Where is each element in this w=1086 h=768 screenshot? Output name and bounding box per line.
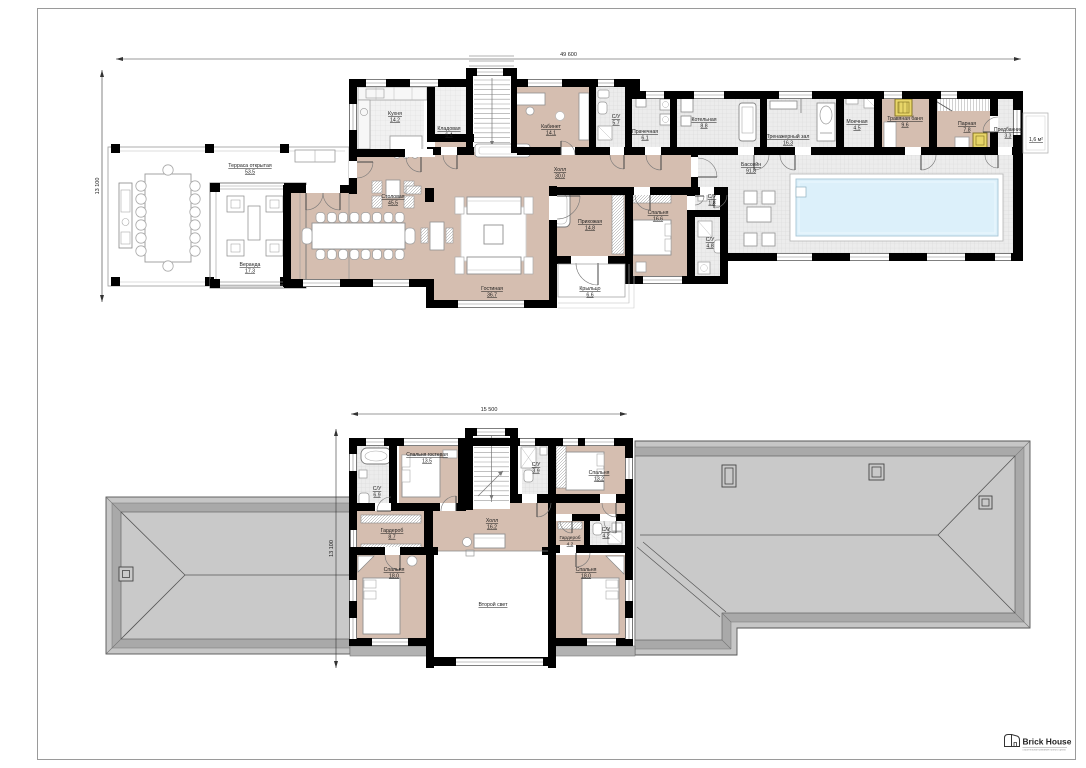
svg-text:Гардероб: Гардероб xyxy=(559,535,580,541)
svg-text:6.4: 6.4 xyxy=(445,132,452,138)
svg-text:9.6: 9.6 xyxy=(901,122,908,128)
svg-text:8.8: 8.8 xyxy=(700,123,707,129)
svg-text:С/У: С/У xyxy=(612,114,621,120)
svg-text:18.0: 18.0 xyxy=(581,573,591,579)
svg-text:Тренажерный зал: Тренажерный зал xyxy=(767,133,810,140)
svg-text:Спальня: Спальня xyxy=(384,567,405,573)
svg-text:Парная: Парная xyxy=(958,121,976,127)
svg-text:36.7: 36.7 xyxy=(487,292,497,298)
svg-text:4.2: 4.2 xyxy=(602,533,609,539)
svg-text:16.6: 16.6 xyxy=(653,216,663,222)
svg-text:17.3: 17.3 xyxy=(245,268,255,274)
svg-text:45.5: 45.5 xyxy=(388,200,398,206)
svg-text:4.5: 4.5 xyxy=(853,125,860,131)
svg-text:С/У: С/У xyxy=(532,462,541,468)
svg-text:Травяная баня: Травяная баня xyxy=(887,116,923,122)
svg-text:Спальня: Спальня xyxy=(576,567,597,573)
svg-text:8.7: 8.7 xyxy=(388,534,395,540)
svg-text:Предбанник: Предбанник xyxy=(994,127,1023,133)
svg-text:7.8: 7.8 xyxy=(963,127,970,133)
svg-text:Спальня: Спальня xyxy=(648,210,669,216)
svg-text:1,6 м²: 1,6 м² xyxy=(1029,137,1043,143)
svg-text:Терраса открытая: Терраса открытая xyxy=(228,163,272,169)
svg-text:С/У: С/У xyxy=(706,237,715,243)
svg-text:Кабинет: Кабинет xyxy=(541,124,561,130)
svg-text:Столовая: Столовая xyxy=(381,194,404,200)
svg-text:6.6: 6.6 xyxy=(586,292,593,298)
svg-text:Второй свет: Второй свет xyxy=(479,601,509,608)
svg-text:Крыльцо: Крыльцо xyxy=(579,286,600,292)
svg-text:Спальня: Спальня xyxy=(589,470,610,476)
svg-text:16.2: 16.2 xyxy=(487,524,497,530)
svg-text:14.8: 14.8 xyxy=(585,225,595,231)
svg-text:Кухня: Кухня xyxy=(388,111,402,117)
svg-text:6.9: 6.9 xyxy=(373,492,380,498)
svg-text:Прачечная: Прачечная xyxy=(632,129,658,135)
svg-text:30.0: 30.0 xyxy=(555,173,565,179)
svg-text:3.3: 3.3 xyxy=(1005,133,1012,139)
svg-text:13.2: 13.2 xyxy=(594,476,604,482)
svg-text:4.2: 4.2 xyxy=(567,541,574,547)
svg-text:Холл: Холл xyxy=(554,167,566,173)
svg-text:5.7: 5.7 xyxy=(612,120,619,126)
svg-text:14.2: 14.2 xyxy=(390,117,400,123)
svg-text:Гостиная: Гостиная xyxy=(481,286,503,292)
svg-text:С/У: С/У xyxy=(373,486,382,492)
svg-text:91.8: 91.8 xyxy=(746,168,756,174)
svg-text:6.1: 6.1 xyxy=(641,135,648,141)
svg-text:С/У: С/У xyxy=(708,194,717,200)
svg-text:4.8: 4.8 xyxy=(706,243,713,249)
svg-text:18.0: 18.0 xyxy=(389,573,399,579)
svg-text:13 100: 13 100 xyxy=(329,540,335,557)
svg-text:Спальня гостевая: Спальня гостевая xyxy=(406,452,448,458)
svg-text:49 600: 49 600 xyxy=(560,52,577,58)
svg-text:Бассейн: Бассейн xyxy=(741,161,761,168)
svg-text:13 100: 13 100 xyxy=(95,178,101,195)
svg-text:Brick House: Brick House xyxy=(1023,737,1072,747)
svg-text:15 500: 15 500 xyxy=(481,407,498,413)
svg-text:3.9: 3.9 xyxy=(532,468,539,474)
svg-text:С/У: С/У xyxy=(602,527,611,533)
svg-text:строительная компания полного: строительная компания полного цикла xyxy=(1023,748,1067,751)
svg-text:1.8: 1.8 xyxy=(708,200,715,206)
svg-text:13.5: 13.5 xyxy=(422,458,432,464)
svg-text:14.1: 14.1 xyxy=(546,130,556,136)
svg-text:Котельная: Котельная xyxy=(691,117,716,123)
svg-text:Холл: Холл xyxy=(486,518,498,524)
svg-text:Прихожая: Прихожая xyxy=(578,219,602,225)
svg-text:Веранда: Веранда xyxy=(240,262,261,268)
svg-text:Моечная: Моечная xyxy=(846,119,867,125)
svg-text:53.5: 53.5 xyxy=(245,169,255,175)
svg-text:16.3: 16.3 xyxy=(783,140,793,146)
svg-text:Гардероб: Гардероб xyxy=(381,528,404,534)
svg-text:Кладовая: Кладовая xyxy=(437,126,460,132)
